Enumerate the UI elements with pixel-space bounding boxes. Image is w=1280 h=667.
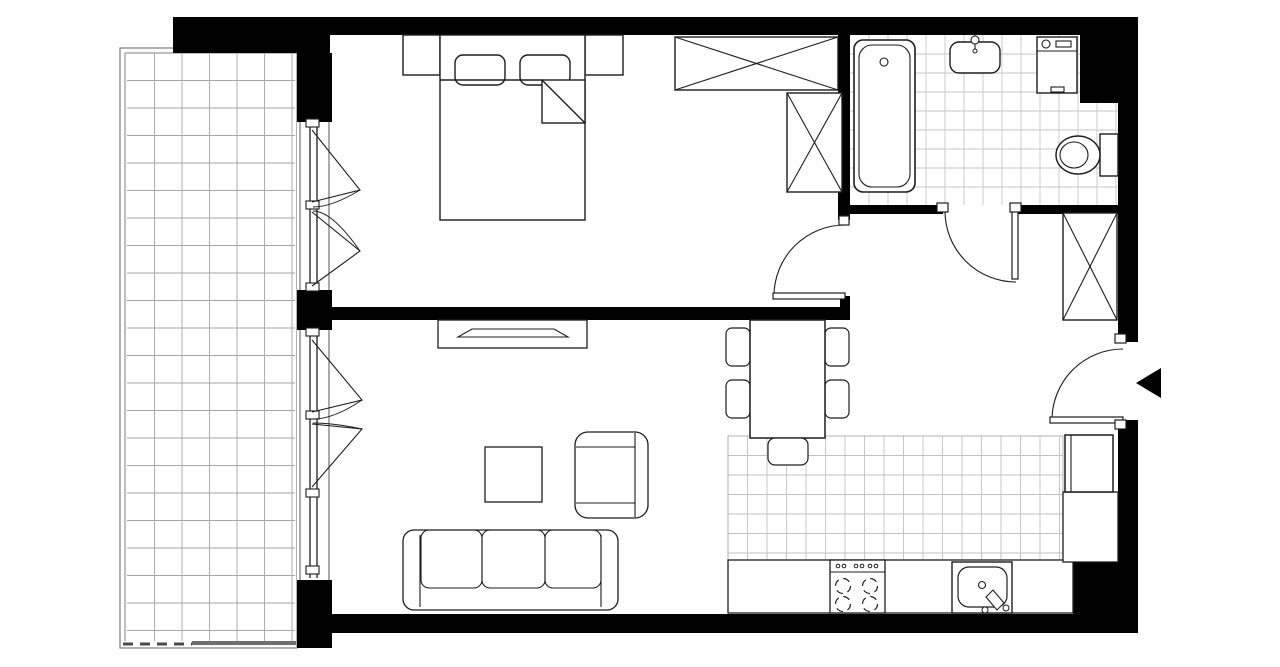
layer-bedroom-furniture — [403, 35, 842, 220]
layer-balcony — [120, 48, 297, 648]
wall-living-bedroom-divider — [297, 307, 845, 320]
layer-dining-furniture — [726, 320, 849, 465]
layer-hall-furniture — [1063, 213, 1117, 320]
sofa — [403, 530, 618, 610]
washbasin-faucet-tip — [973, 49, 977, 53]
fridge — [1065, 435, 1113, 492]
dining-chair-left-1 — [726, 328, 750, 366]
nightstand-left — [403, 35, 440, 75]
wall-left-upper — [297, 53, 332, 122]
floorplan-page — [0, 0, 1280, 667]
bathroom-door-arc — [945, 211, 1016, 282]
bathroom-door-hinge-left — [937, 203, 948, 212]
kitchen-counter-right — [1063, 492, 1118, 562]
bedroom-window-tick-top — [306, 119, 319, 127]
balcony-railing-outer — [120, 48, 297, 648]
bathroom-door-leaf — [1012, 211, 1018, 279]
kitchen-sink-handle-2 — [1003, 605, 1009, 611]
coffee-table — [485, 447, 542, 502]
wall-bottom — [297, 614, 1138, 633]
dining-chair-bottom — [768, 438, 808, 465]
bathroom-door-hinge-right — [1010, 203, 1021, 212]
dining-chair-left-2 — [726, 380, 750, 418]
apartment-floorplan — [0, 0, 1280, 667]
wall-top — [330, 17, 1138, 35]
bedroom-door-arc — [774, 225, 845, 296]
dining-chair-right-1 — [825, 328, 849, 366]
layer-windows — [297, 119, 362, 580]
wall-top-left-block — [173, 17, 330, 53]
entrance-door-arc — [1052, 349, 1123, 420]
living-window-tick-top — [306, 328, 319, 336]
entrance-door-leaf — [1050, 417, 1123, 423]
entrance-door-hinge-bottom — [1115, 420, 1126, 429]
dining-table — [750, 320, 825, 438]
bathtub-outer — [854, 40, 915, 192]
toilet-tank — [1100, 134, 1118, 176]
bedroom-window-tick-bot — [306, 283, 319, 291]
balcony-floor-tiles — [127, 53, 295, 641]
living-window-bg — [297, 330, 332, 580]
living-window-tick-bot — [306, 566, 319, 574]
entrance-arrow — [1136, 368, 1161, 398]
living-window-tick-low — [306, 489, 319, 497]
bedroom-door-hinge — [839, 216, 849, 225]
wall-bathroom-south-west — [840, 205, 943, 214]
entrance-door-hinge-top — [1115, 334, 1126, 343]
bedroom-door-leaf — [773, 293, 845, 299]
toilet-bowl — [1056, 136, 1100, 174]
wall-right-upper — [1118, 35, 1138, 342]
kitchen-sink-handle-1 — [982, 607, 988, 613]
nightstand-right — [585, 35, 623, 75]
tv-set — [458, 329, 568, 337]
wall-left-lower — [297, 580, 332, 648]
armchair — [575, 432, 648, 518]
layer-living-furniture — [403, 320, 648, 610]
kitchen-counter-bottom — [728, 560, 1073, 613]
wall-right-lower — [1118, 420, 1138, 562]
washbasin-faucet-head — [971, 36, 979, 44]
dining-chair-right-2 — [825, 380, 849, 418]
